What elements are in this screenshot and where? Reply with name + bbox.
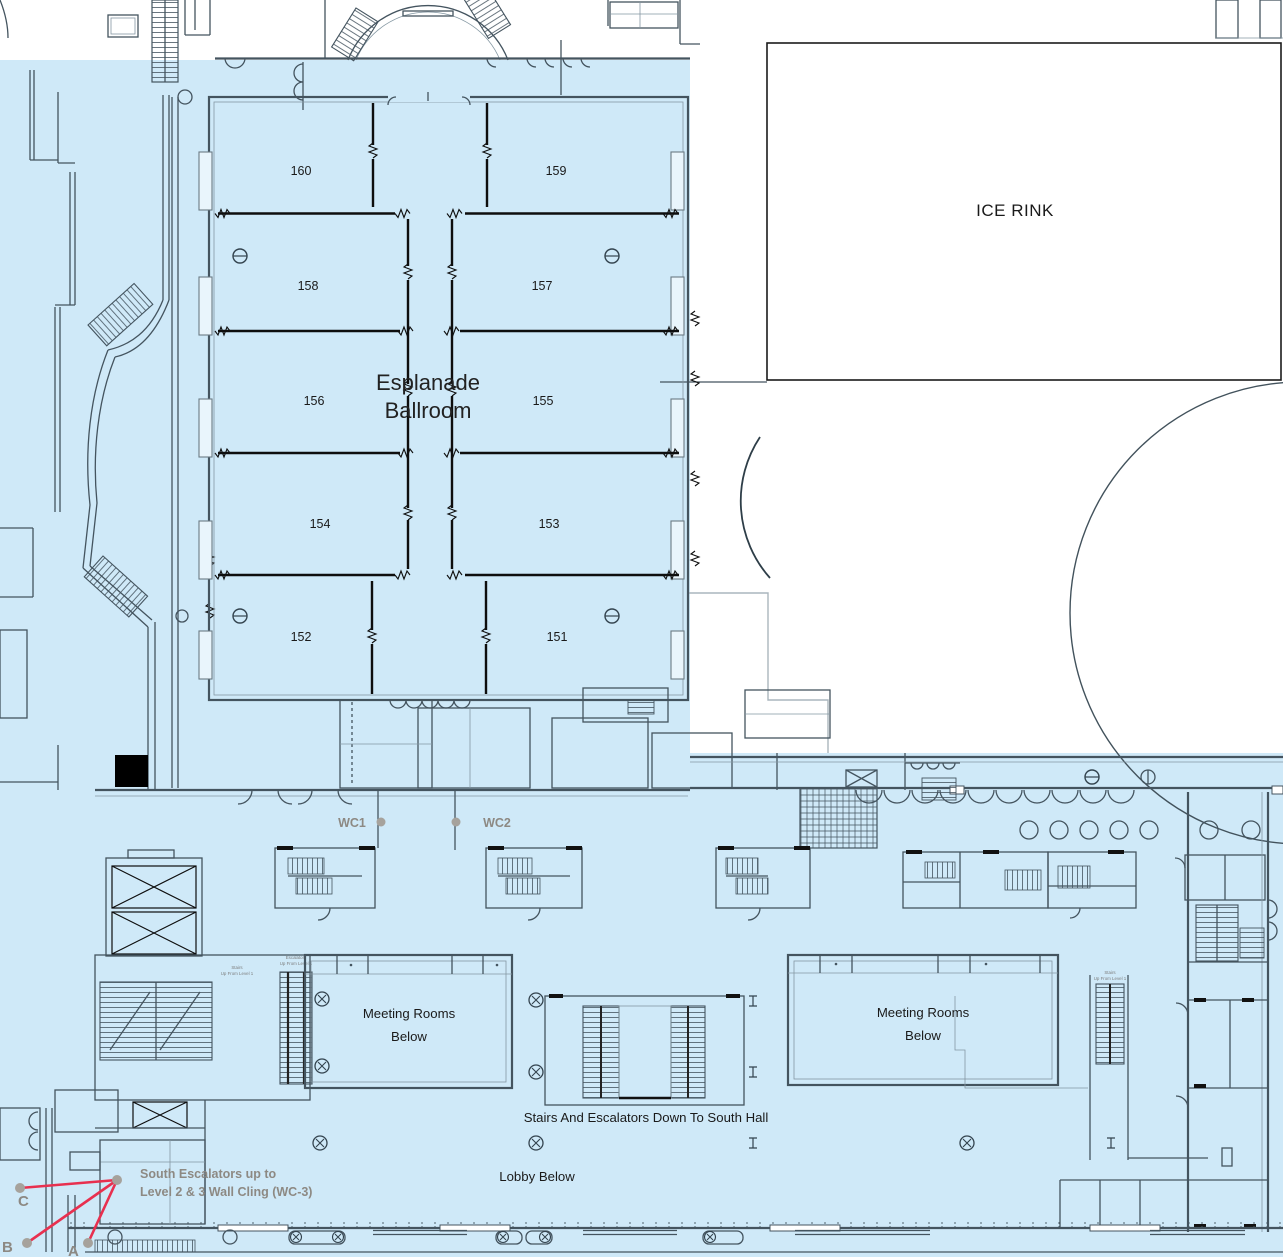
room-152-label: 152 bbox=[291, 630, 312, 644]
room-157-label: 157 bbox=[532, 279, 553, 293]
annotation-dot-a bbox=[83, 1238, 93, 1248]
column-marker bbox=[315, 1059, 329, 1073]
ice-rink: ICE RINK bbox=[767, 43, 1281, 380]
annotation-hub-dot bbox=[112, 1175, 122, 1185]
column-marker bbox=[1085, 770, 1099, 784]
column-marker bbox=[605, 609, 619, 623]
annotation-dot-b bbox=[22, 1238, 32, 1248]
room-154-label: 154 bbox=[310, 517, 331, 531]
escalators-up-tiny-label: Escalators bbox=[286, 955, 307, 960]
column-marker bbox=[960, 1136, 974, 1150]
stairs-up-right-tiny-label2: Up From Level 1 bbox=[1094, 976, 1127, 981]
meeting-right-label-line1: Meeting Rooms bbox=[877, 1005, 970, 1020]
room-160-label: 160 bbox=[291, 164, 312, 178]
room-158-label: 158 bbox=[298, 279, 319, 293]
column-marker bbox=[315, 992, 329, 1006]
ballroom-title-line2: Ballroom bbox=[385, 398, 472, 423]
ballroom-title-line1: Esplanade bbox=[376, 370, 480, 395]
stairs-up-tiny-label: Stairs bbox=[231, 965, 243, 970]
room-159-label: 159 bbox=[546, 164, 567, 178]
escalators-up-tiny-label2: Up From Level 1 bbox=[280, 961, 313, 966]
annotation-dot-c bbox=[15, 1183, 25, 1193]
ice-rink-label: ICE RINK bbox=[976, 201, 1054, 220]
lobby-below-label: Lobby Below bbox=[499, 1169, 575, 1184]
escalator-block-east bbox=[800, 788, 877, 848]
annotation-text-line2: Level 2 & 3 Wall Cling (WC-3) bbox=[140, 1185, 312, 1199]
room-155-label: 155 bbox=[533, 394, 554, 408]
column-marker bbox=[529, 1065, 543, 1079]
meeting-right-label-line2: Below bbox=[905, 1028, 941, 1043]
meeting-left-label-line2: Below bbox=[391, 1029, 427, 1044]
column-marker bbox=[313, 1136, 327, 1150]
room-151-label: 151 bbox=[547, 630, 568, 644]
wc1-dot bbox=[377, 818, 386, 827]
column-marker bbox=[605, 249, 619, 263]
floor-plan-page: ICE RINK bbox=[0, 0, 1283, 1257]
meeting-left-label-line1: Meeting Rooms bbox=[363, 1006, 456, 1021]
wc2-dot bbox=[452, 818, 461, 827]
stairs-up-right-tiny-label: Stairs bbox=[1104, 970, 1116, 975]
annotation-marker-a: A bbox=[68, 1243, 79, 1257]
annotation-marker-c: C bbox=[18, 1193, 29, 1210]
wc1-label: WC1 bbox=[338, 816, 366, 830]
stairs-up-tiny-label2: Up From Level 1 bbox=[221, 971, 254, 976]
room-153-label: 153 bbox=[539, 517, 560, 531]
column-marker bbox=[233, 609, 247, 623]
room-156-label: 156 bbox=[304, 394, 325, 408]
annotation-marker-b: B bbox=[2, 1239, 13, 1256]
column-marker bbox=[529, 993, 543, 1007]
column-marker bbox=[233, 249, 247, 263]
wc2-label: WC2 bbox=[483, 816, 511, 830]
stairs-south-hall-label: Stairs And Escalators Down To South Hall bbox=[524, 1110, 769, 1125]
solid-core-block bbox=[115, 755, 148, 787]
floor-plan-svg: ICE RINK bbox=[0, 0, 1283, 1257]
annotation-text-line1: South Escalators up to bbox=[140, 1167, 276, 1181]
column-marker bbox=[529, 1136, 543, 1150]
